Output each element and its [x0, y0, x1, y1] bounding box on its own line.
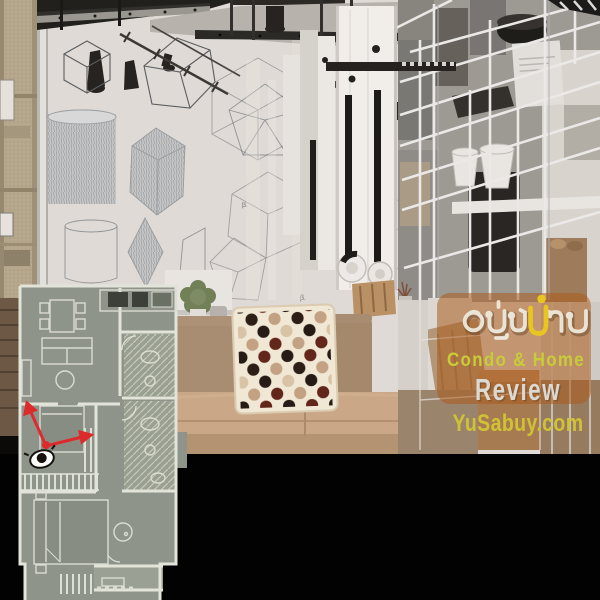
svg-text:YuSabuy.com: YuSabuy.com	[453, 410, 584, 437]
svg-text:Condo & Home: Condo & Home	[447, 349, 585, 371]
svg-text:Review: Review	[475, 372, 561, 407]
